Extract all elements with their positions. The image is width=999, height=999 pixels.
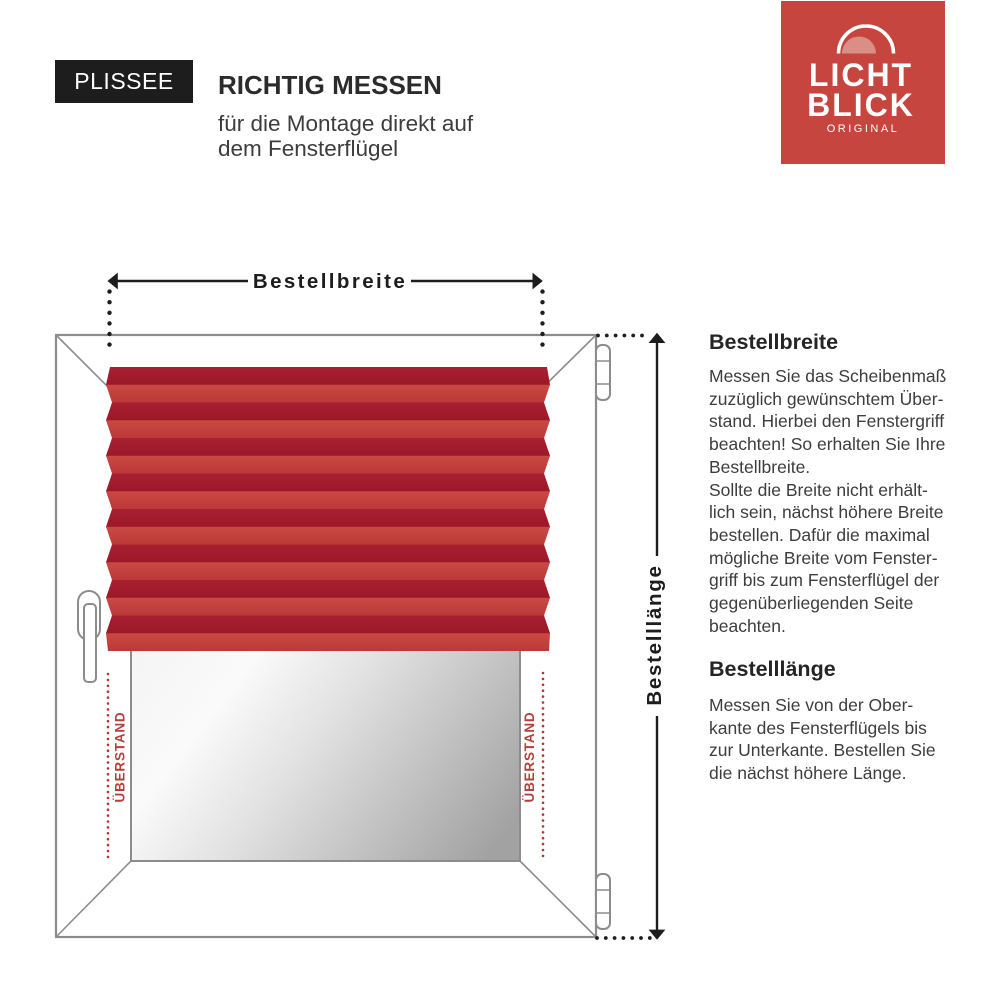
- svg-text:Bestellbreite: Bestellbreite: [253, 270, 407, 293]
- svg-text:ÜBERSTAND: ÜBERSTAND: [522, 712, 537, 803]
- svg-text:ÜBERSTAND: ÜBERSTAND: [113, 712, 128, 803]
- svg-text:Bestelllänge: Bestelllänge: [643, 564, 666, 705]
